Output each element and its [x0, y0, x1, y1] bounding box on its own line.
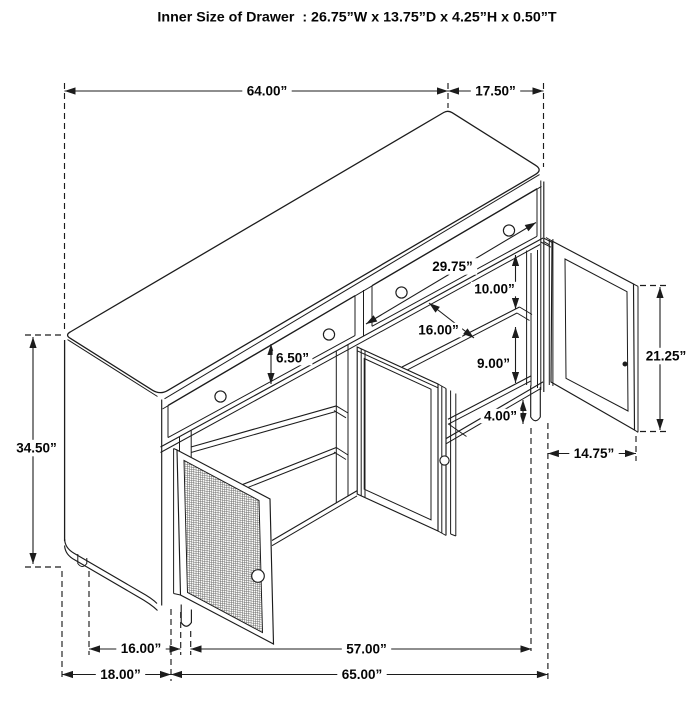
- svg-text:Inner Size of Drawer : 26.75”: Inner Size of Drawer : 26.75”W x 13.75”D…: [157, 10, 556, 26]
- svg-text:14.75”: 14.75”: [574, 446, 615, 461]
- svg-text:21.25”: 21.25”: [646, 349, 687, 364]
- svg-text:9.00”: 9.00”: [477, 356, 510, 371]
- svg-text:4.00”: 4.00”: [484, 409, 517, 424]
- svg-text:65.00”: 65.00”: [342, 667, 383, 682]
- svg-text:6.50”: 6.50”: [276, 351, 309, 366]
- svg-text:34.50”: 34.50”: [16, 441, 57, 456]
- svg-text:29.75”: 29.75”: [432, 259, 473, 274]
- svg-text:10.00”: 10.00”: [474, 282, 515, 297]
- svg-text:18.00”: 18.00”: [100, 667, 141, 682]
- svg-text:16.00”: 16.00”: [418, 323, 459, 338]
- svg-text:16.00”: 16.00”: [121, 641, 162, 656]
- svg-text:17.50”: 17.50”: [475, 84, 516, 99]
- svg-text:57.00”: 57.00”: [346, 642, 387, 657]
- svg-text:64.00”: 64.00”: [247, 84, 288, 99]
